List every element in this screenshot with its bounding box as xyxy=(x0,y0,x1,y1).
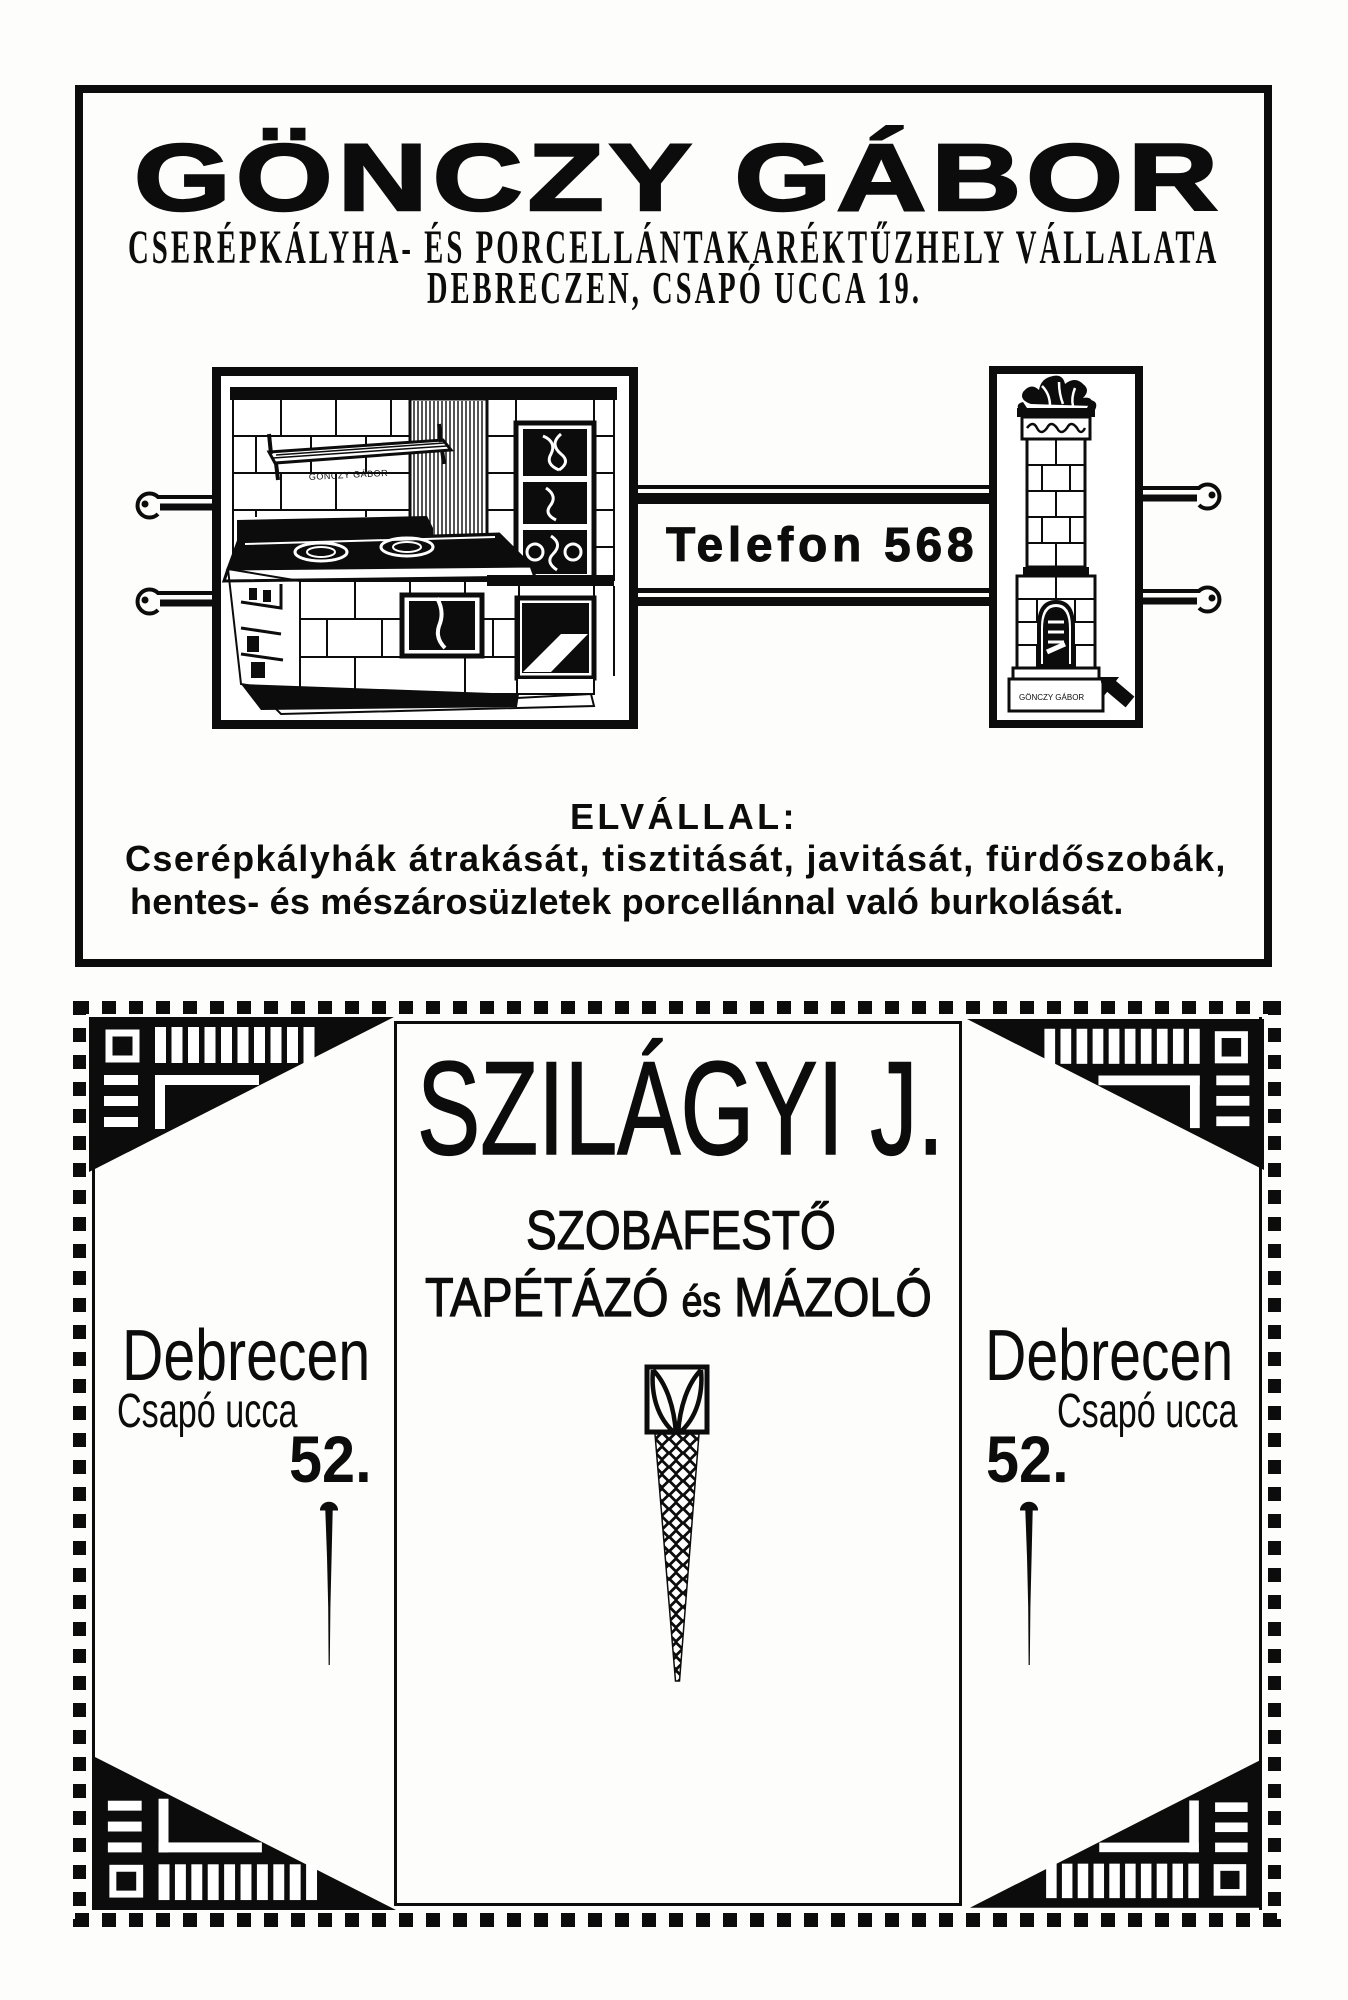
svg-text:GÖNCZY GÁBOR: GÖNCZY GÁBOR xyxy=(1019,693,1084,702)
svg-text:GÖNCZY GÁBOR: GÖNCZY GÁBOR xyxy=(309,468,389,482)
